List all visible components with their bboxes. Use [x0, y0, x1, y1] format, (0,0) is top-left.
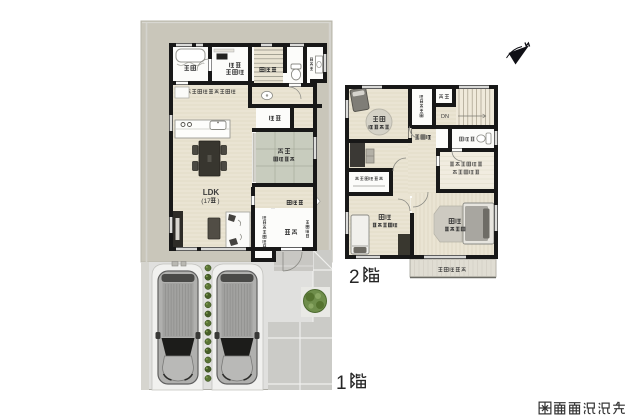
svg-text:): )	[217, 198, 219, 205]
svg-text:DN: DN	[441, 114, 449, 120]
svg-text:2: 2	[349, 267, 360, 288]
svg-text:1: 1	[336, 373, 347, 394]
svg-text:(17: (17	[201, 198, 211, 205]
svg-text:LDK: LDK	[203, 188, 220, 197]
